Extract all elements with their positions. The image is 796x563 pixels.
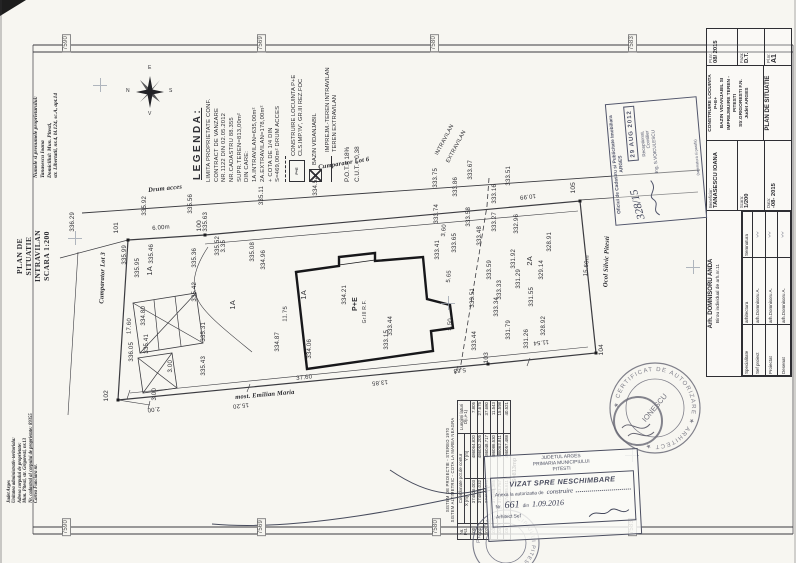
vizat-nr-label: Nr.: [495, 505, 501, 510]
legend-item: P+E CONSTRUIRE LOCUINTA P+E CLS.IMP.'IV'…: [289, 22, 305, 182]
vizat-sign-label: Arhitect Sef: [496, 515, 521, 521]
owner-line: Numele si prenumele proprietarului:: [33, 60, 40, 178]
coord-len: 40.521: [504, 401, 511, 434]
plan-label: 5.50: [447, 318, 454, 331]
plan-label: 105: [571, 182, 578, 193]
plan-label: 334.21: [342, 285, 348, 305]
role-row: Sef proiect arh.Domnisoru A. 〰: [752, 212, 765, 376]
legend: LEGENDA: LIMITA PROPRIETATE CONF.CONTRAC…: [192, 22, 414, 182]
plan-label: 100: [197, 220, 204, 231]
fold-mark: 7590: [62, 518, 71, 536]
legend-item: BAZIN VIDANJABIL: [309, 22, 322, 182]
vizat-date-handwritten: 1.09.2016: [532, 498, 564, 509]
plan-label: 335.63: [203, 212, 209, 232]
plan-label: 334.06: [307, 339, 313, 359]
coord-len: 15.598: [497, 401, 504, 434]
plan-label: 1A: [300, 290, 308, 300]
plan-label: 101: [114, 222, 121, 233]
fold-mark: 7569: [257, 34, 266, 52]
role-label: Proiectat: [765, 325, 778, 376]
project-title-line: IMPREJMUIRE TEREN - PITESTI: [727, 68, 739, 138]
ocpi-signature-icon: [644, 176, 664, 219]
plan-label: 104: [599, 344, 606, 355]
legend-line: NR.1122 DIN 02.05.2012: [221, 22, 227, 182]
plan-label: 332.96: [514, 214, 520, 234]
legend-item-label: IMPREJM.-TEREN INTRAVILAN: [325, 67, 331, 152]
role-name: arh.Domnisoru A.: [765, 258, 778, 325]
spec-table: Specialitate arhitectura Semnatura Sef p…: [742, 211, 791, 376]
grid-cross-icon: [68, 231, 82, 245]
plan-label: 331.79: [506, 320, 512, 340]
plan-label: 5.63: [453, 366, 466, 373]
legend-symbol-icon: [285, 156, 286, 182]
compass-e: E: [148, 66, 152, 71]
legend-line: + COTA DE 1/4 DIN: [268, 22, 274, 182]
plan-label: 335.11: [259, 186, 265, 205]
plan-label: 3.00: [152, 388, 158, 400]
plan-label: 335.46: [149, 244, 155, 264]
project-title-line: CONSTRUIRE LOCUINTA P+E+: [708, 68, 720, 138]
coord-len: 37.680: [484, 401, 491, 434]
vizat-signature-icon: [586, 505, 633, 519]
compass-s: S: [169, 89, 173, 94]
plan-label: 331.55: [529, 287, 535, 307]
legend-line: CONTRACT DE VANZARE: [214, 22, 220, 182]
plan-label: 335.08: [250, 242, 256, 262]
col-coord: Coordonate pct.de contur: [458, 434, 465, 524]
plan-label: P+E: [352, 297, 359, 311]
legend-line: S=469,00m² DRUM ACCES: [275, 22, 281, 182]
legend-line: DIN CARE:: [244, 22, 250, 182]
plan-label: 2A: [526, 256, 534, 266]
plan-label: 334.87: [275, 332, 281, 352]
plan-label: 2.00: [147, 405, 160, 412]
legend-line: NR.CADASTRU 88.355: [229, 22, 235, 182]
plan-label: 336.29: [70, 212, 76, 232]
spec-val: arhitectura: [743, 258, 753, 325]
plan-label: 333.44: [472, 331, 478, 351]
plan-label: 1A: [146, 266, 154, 276]
plan-label: 333.75: [433, 168, 439, 188]
role-row: Desenat arh.Domnisoru A. 〰: [778, 212, 791, 376]
scan-edge-left: [0, 0, 2, 563]
col-len: Lungimi laturi D(i,i+1): [458, 401, 471, 434]
fold-mark: 7580: [430, 34, 439, 52]
legend-item: [285, 22, 286, 182]
fold-mark: 7569: [257, 518, 266, 536]
plan-label: 333.34: [494, 297, 500, 317]
plansa-title: PLAN DE SITUATIE: [763, 66, 791, 141]
plan-label: 331.26: [524, 329, 530, 349]
plan-label: 5.65: [446, 270, 453, 283]
plan-label: 333.16: [492, 184, 498, 204]
legend-item-label: CONSTRUIRE LOCUINTA P+E: [291, 75, 297, 156]
role-label: Sef proiect: [752, 325, 765, 376]
beneficiar-value: TANASESCU IOANA: [713, 143, 719, 208]
plan-label: 328.92: [541, 316, 547, 336]
plan-title-line: PLAN DE SITUATIE: [15, 220, 33, 292]
plan-label: 333.48: [477, 226, 483, 246]
plan-title-line: SCARA 1:200: [42, 220, 51, 292]
plan-label: 1A: [229, 300, 237, 310]
grid-cross-icon: [686, 260, 700, 274]
plan-label: 335.41: [144, 334, 150, 354]
pr-value: 08/ 2015: [713, 31, 719, 63]
plan-label: 3.00: [168, 360, 174, 372]
project-title: CONSTRUIRE LOCUINTA P+E+BAZIN VIDANJABIL…: [707, 66, 763, 141]
owner-line: Tanasescu Ioana: [40, 60, 47, 178]
role-row: Proiectat arh.Domnisoru A. 〰: [765, 212, 778, 376]
plan-label: 3.60: [441, 224, 448, 237]
coord-y: 486064.820: [471, 434, 478, 479]
north-compass: E N S V: [132, 72, 168, 112]
coord-header-2: SISTEM ALTIMETRIC - COTA LA MAREA NEAGRA: [450, 400, 455, 540]
vizat-din-label: din: [523, 504, 530, 509]
data-value: -08- 2015: [771, 143, 777, 208]
plan-label: 3.35: [221, 240, 227, 252]
designer-office: Birou individual de arh.nr.11: [716, 213, 722, 374]
role-name: arh.Domnisoru A.: [778, 258, 791, 325]
role-signature: 〰: [778, 212, 791, 258]
compass-n: N: [126, 89, 130, 94]
spec-col: Specialitate: [743, 325, 753, 376]
plan-label: 333.58: [466, 207, 472, 227]
plan-label: 335.42: [192, 282, 198, 302]
plan-label: 328.91: [547, 232, 553, 252]
plan-label: 331.92: [511, 249, 517, 269]
grid-cross-icon: [93, 78, 107, 92]
admin-line: Cartea Funciara nr.: [34, 383, 39, 503]
plan-title-line: INTRAVILAN: [33, 220, 42, 292]
ocpi-stamp: Oficiul de Cadastru si Publicitate Imobi…: [610, 100, 702, 222]
plan-title-block: PLAN DE SITUATIEINTRAVILANSCARA 1:200: [15, 220, 42, 292]
plan-label: 335.99: [122, 245, 128, 265]
owner-line: Domiciliul: Mun. Pitesti,: [47, 60, 54, 178]
plan-label: 333.27: [492, 212, 498, 232]
plan-label: 331.29: [516, 269, 522, 289]
plan-label: 333.59: [487, 260, 493, 280]
legend-line: LIMITA PROPRIETATE CONF.: [206, 22, 212, 182]
faza-value: D.T.: [744, 31, 750, 63]
scanned-site-plan-sheet: E N S V Numele si prenumele proprietarul…: [0, 0, 796, 563]
plan-label: 329.14: [539, 260, 545, 280]
legend-item: IMPREJM.-TEREN INTRAVILAN TEREN EXTRAVIL…: [325, 22, 338, 182]
plan-label: 334.52: [313, 176, 319, 196]
plan-label: 102: [104, 390, 111, 401]
plan-label: 336.05: [129, 342, 135, 362]
plan-label: 103: [484, 352, 491, 363]
plan-label: 333.41: [435, 240, 441, 260]
owner-line: str. Libertatii, nr.4, bl.124, sc.A, apt…: [53, 60, 60, 178]
legend-item-label: BAZIN VIDANJABIL: [312, 113, 318, 165]
legend-item-label2: CLS.IMP.'IV', GR.III REZ.FOC: [298, 75, 304, 156]
fold-mark: 7583: [628, 34, 637, 52]
role-name: arh.Domnisoru A.: [752, 258, 765, 325]
role-signature: 〰: [752, 212, 765, 258]
grid-cross-icon: [441, 296, 455, 310]
legend-lines: LIMITA PROPRIETATE CONF.CONTRACT DE VANZ…: [206, 22, 281, 182]
title-block: Arh. DOMNISORU ANDA Birou individual de …: [706, 28, 792, 377]
project-title-line: Judet ARGES: [745, 68, 751, 138]
compass-rose-icon: [132, 72, 168, 112]
plan-label: 335.43: [201, 356, 207, 376]
ocpi-footnote: (semnatura si parafa): [690, 100, 704, 214]
coord-len: 7.805: [471, 401, 478, 434]
vizat-stamp: JUDETUL ARGES PRIMARIA MUNICIPIULUI PITE…: [484, 448, 642, 542]
scara-value: 1/200: [744, 143, 750, 208]
plan-label: 334.80: [141, 306, 147, 326]
plan-label: 17.60: [126, 318, 133, 334]
designer-name: Arh. DOMNISORU ANDA: [708, 259, 714, 329]
legend-symbol-icon: P+E: [289, 160, 305, 182]
fold-mark: 7590: [62, 34, 71, 52]
legend-items: P+E CONSTRUIRE LOCUINTA P+E CLS.IMP.'IV'…: [285, 22, 339, 182]
plan-label: 335.36: [192, 248, 198, 268]
plan-label: 333.51: [506, 166, 512, 186]
owner-info-block: Numele si prenumele proprietarului:Tanas…: [33, 60, 61, 178]
plan-label: 333.65: [452, 233, 458, 253]
plan-label: 333.67: [468, 160, 474, 180]
legend-title: LEGENDA:: [192, 22, 203, 180]
fold-mark: 7580: [432, 518, 441, 536]
plan-label: 333.86: [453, 177, 459, 197]
project-title-line: BAZIN VIDANJABIL SI: [720, 68, 726, 138]
plan-label: 335.95: [135, 258, 141, 278]
col-y: Y [m]: [464, 434, 471, 479]
plan-label: 335.92: [142, 196, 148, 216]
pl-value: A1: [771, 31, 778, 63]
plan-label: 334.96: [261, 250, 267, 270]
coord-len: 11.543: [490, 401, 497, 434]
plan-label: 11.75: [282, 306, 289, 322]
legend-item-label2: TEREN EXTRAVILAN: [332, 67, 338, 152]
plan-label: 335.56: [188, 194, 194, 214]
coord-len: 27.675: [477, 401, 484, 434]
spec-sig: Semnatura: [743, 212, 753, 258]
compass-v: V: [148, 112, 152, 117]
legend-line: SUPR.TEREN=813,00m²: [237, 22, 243, 182]
round-stamp-center-text: IONESCU: [640, 392, 669, 424]
plan-label: 335.31: [201, 322, 207, 342]
vizat-anexa-handwritten: construire: [546, 487, 573, 495]
role-signature: 〰: [765, 212, 778, 258]
vizat-nr-handwritten: 661: [504, 499, 520, 511]
role-label: Desenat: [778, 325, 791, 376]
plan-label: 333.74: [434, 204, 440, 224]
plan-label: Gr.III R.F.: [363, 300, 368, 323]
plan-label: 333.15: [384, 330, 390, 350]
plan-label: 333.51: [470, 288, 476, 308]
admin-info-block: Judet ArgesUnitatea administrativ-terito…: [7, 383, 39, 503]
